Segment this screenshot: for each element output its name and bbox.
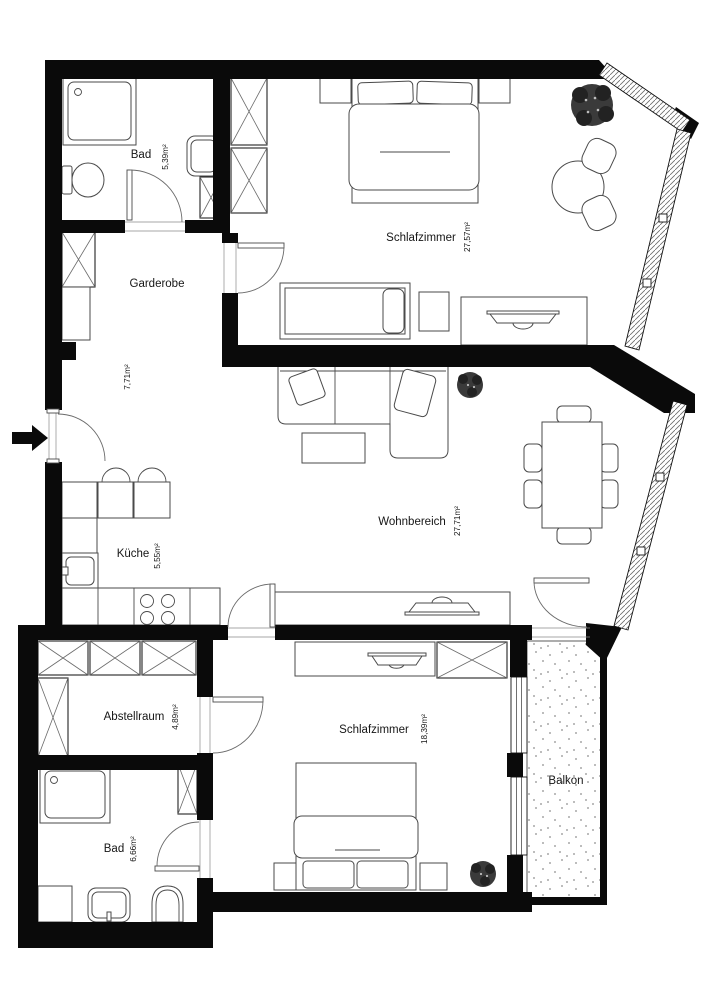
room-label-abstellraum: Abstellraum xyxy=(104,711,165,723)
wardrobe xyxy=(62,232,95,287)
duvet xyxy=(349,104,479,190)
room-label-bad-bottom: Bad xyxy=(104,843,124,855)
room-area-bad-top: 5,39m² xyxy=(161,144,170,170)
room-area-kueche: 5,55m² xyxy=(153,543,162,569)
room-label-wohnbereich: Wohnbereich xyxy=(378,516,446,528)
room-label-bad-top: Bad xyxy=(131,149,151,161)
pillow xyxy=(383,289,404,333)
room-label-balkon: Balkon xyxy=(548,775,583,787)
double-bed xyxy=(294,763,418,890)
shower-tray xyxy=(45,771,105,818)
room-area-garderobe: 7,71m² xyxy=(123,364,132,390)
chair xyxy=(557,527,591,544)
room-area-schlafzimmer-bottom: 18,39m² xyxy=(420,714,429,744)
room-area-schlafzimmer-top: 27,57m² xyxy=(463,222,472,252)
storage-cabinet xyxy=(142,641,196,675)
coffee-table xyxy=(302,433,365,463)
toilet-bowl xyxy=(72,163,104,197)
pillow xyxy=(417,81,473,105)
chair xyxy=(524,480,542,508)
balcony-window xyxy=(511,777,527,855)
balcony-window xyxy=(511,677,527,753)
duvet xyxy=(294,816,418,858)
balcony-slab xyxy=(523,641,607,905)
room-area-bad-bottom: 6,66m² xyxy=(129,836,138,862)
floor-plan: Bad 5,39m² Schlafzimmer 27,57m² Garderob… xyxy=(0,0,707,1000)
wardrobe xyxy=(437,642,507,678)
sink-faucet xyxy=(107,912,111,921)
kitchen-faucet xyxy=(62,567,68,575)
room-area-abstellraum: 4,89m² xyxy=(171,704,180,730)
chair xyxy=(600,444,618,472)
kitchen-sink xyxy=(66,557,94,585)
storage-cabinet-tall xyxy=(38,678,68,757)
garderobe-furniture xyxy=(62,232,95,340)
cabinet xyxy=(38,886,72,922)
daybed xyxy=(280,283,410,339)
plant-icon xyxy=(470,861,496,887)
toilet-tank xyxy=(62,166,72,194)
pillow xyxy=(357,861,408,888)
double-bed xyxy=(349,77,479,203)
nightstand-right xyxy=(420,863,447,890)
pillow xyxy=(303,861,354,888)
shelf xyxy=(62,287,90,340)
shower-tray xyxy=(68,82,131,140)
room-label-kueche: Küche xyxy=(117,548,150,560)
room-area-wohnbereich: 27,71m² xyxy=(453,506,462,536)
bench xyxy=(419,292,449,331)
storage-cabinet xyxy=(38,641,88,675)
wardrobe-column xyxy=(231,78,267,213)
plant-icon xyxy=(571,84,614,126)
chair xyxy=(524,444,542,472)
room-label-garderobe: Garderobe xyxy=(130,278,185,290)
room-label-schlafzimmer-bottom: Schlafzimmer xyxy=(339,724,409,736)
sideboard xyxy=(273,592,510,625)
storage-cabinet xyxy=(90,641,140,675)
nightstand-left xyxy=(320,77,351,103)
nightstand-right xyxy=(479,77,510,103)
plant-icon xyxy=(457,372,483,398)
toilet xyxy=(152,886,183,922)
bathroom-cabinet-tall xyxy=(178,764,197,814)
chair xyxy=(600,480,618,508)
chair xyxy=(557,406,591,423)
dining-table xyxy=(542,422,602,528)
room-label-schlafzimmer-top: Schlafzimmer xyxy=(386,232,456,244)
nightstand-left xyxy=(274,863,296,890)
pillow xyxy=(358,81,414,105)
